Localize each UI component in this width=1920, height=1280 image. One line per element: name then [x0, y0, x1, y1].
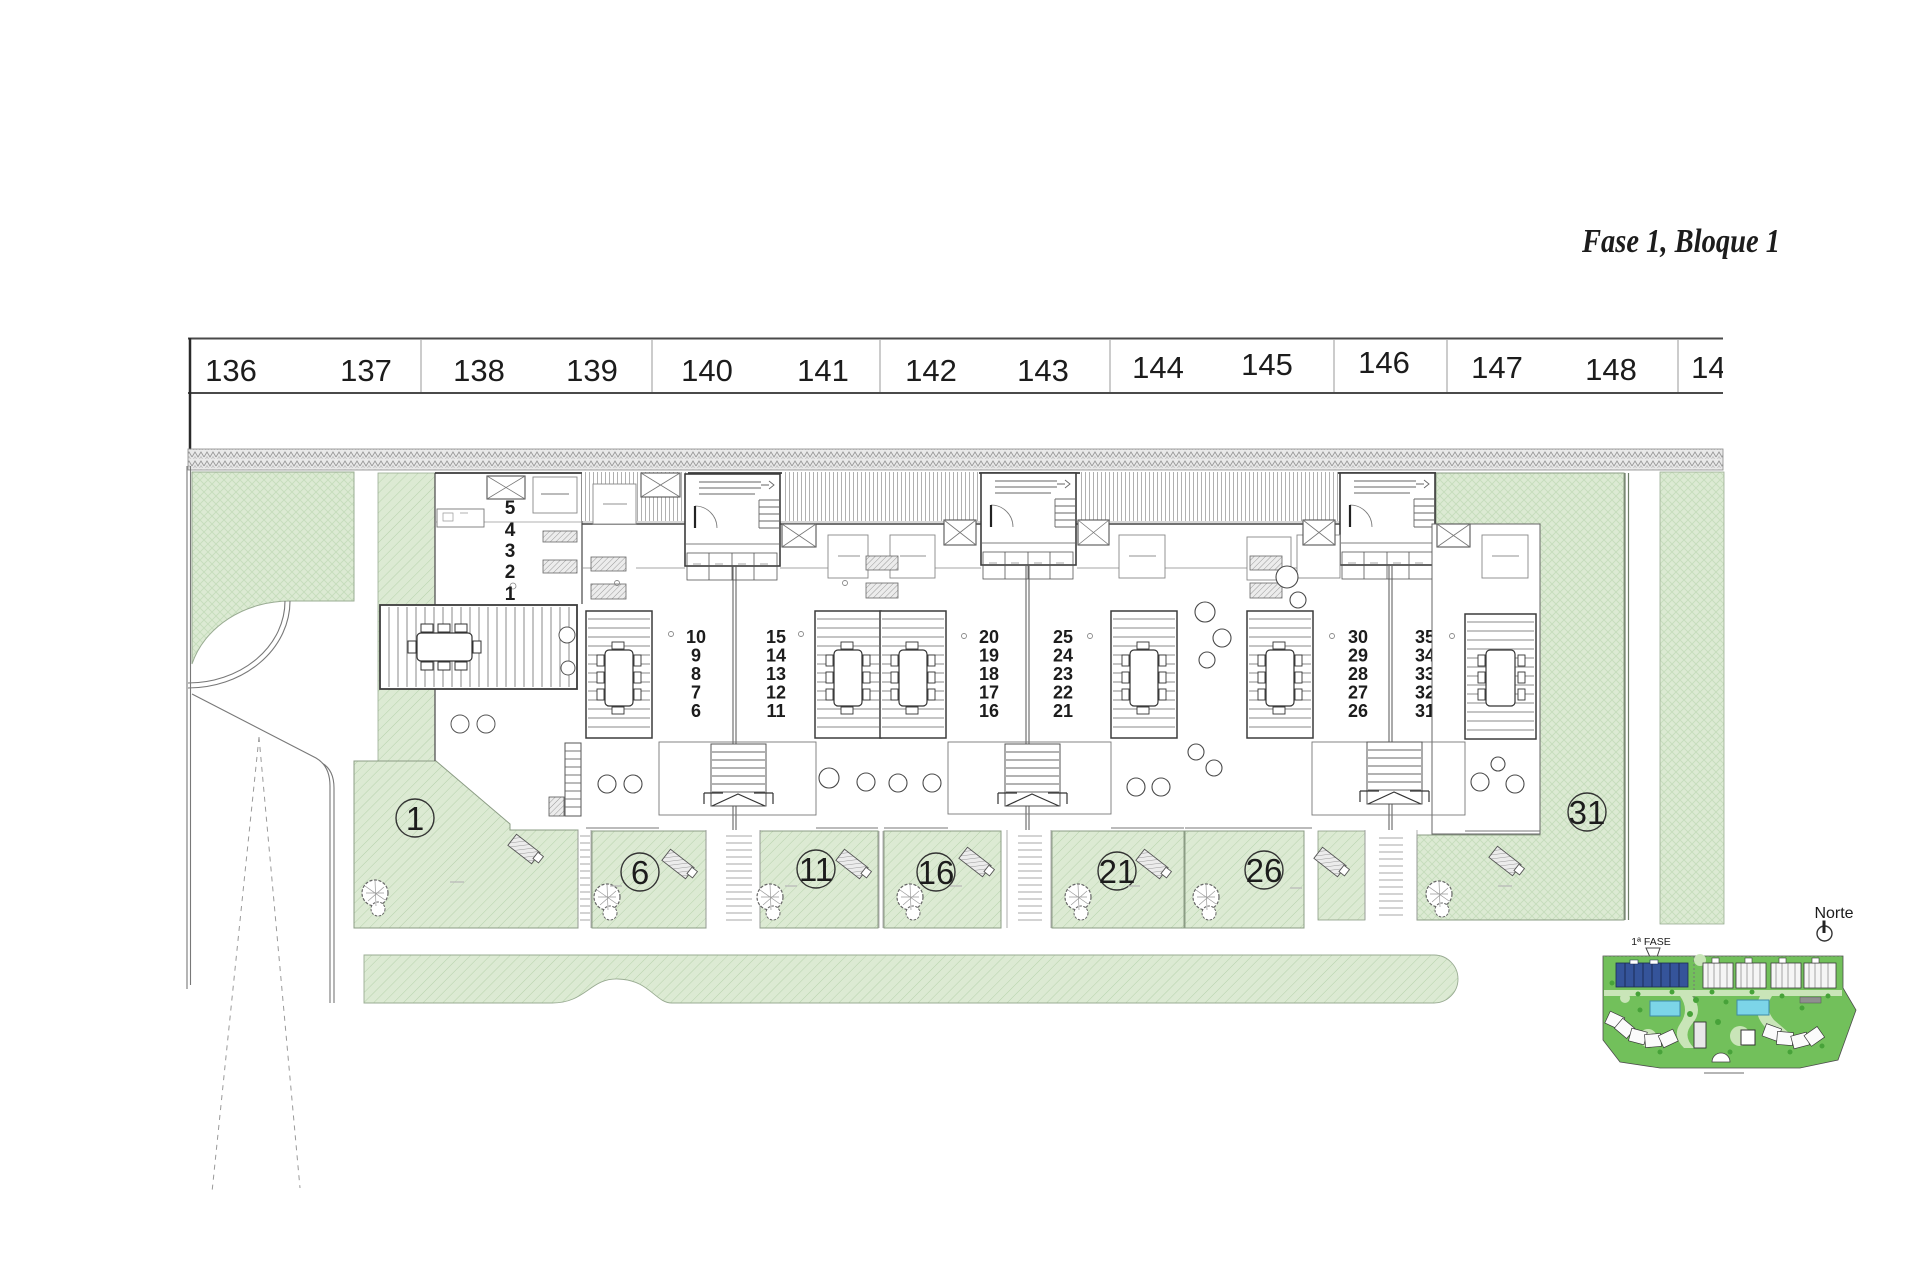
- svg-text:20: 20: [979, 627, 999, 647]
- svg-text:3: 3: [505, 541, 516, 562]
- svg-text:29: 29: [1348, 646, 1368, 666]
- svg-text:1: 1: [406, 800, 424, 837]
- svg-text:27: 27: [1348, 683, 1368, 703]
- svg-text:1ª FASE: 1ª FASE: [1631, 936, 1671, 948]
- svg-text:144: 144: [1132, 350, 1184, 385]
- svg-text:11: 11: [766, 701, 785, 721]
- svg-text:7: 7: [691, 683, 701, 703]
- svg-text:10: 10: [686, 627, 706, 647]
- svg-text:148: 148: [1585, 352, 1637, 387]
- svg-text:25: 25: [1053, 627, 1073, 647]
- svg-text:142: 142: [905, 353, 957, 388]
- svg-text:6: 6: [631, 854, 649, 891]
- svg-text:145: 145: [1241, 347, 1293, 382]
- svg-text:140: 140: [681, 353, 733, 388]
- svg-text:147: 147: [1471, 350, 1523, 385]
- svg-text:21: 21: [1053, 701, 1073, 721]
- svg-text:6: 6: [691, 701, 701, 721]
- svg-text:143: 143: [1017, 353, 1069, 388]
- svg-text:2: 2: [505, 562, 516, 583]
- svg-text:14: 14: [766, 646, 786, 666]
- svg-text:19: 19: [979, 646, 999, 666]
- svg-text:8: 8: [691, 664, 701, 684]
- svg-text:16: 16: [918, 854, 955, 891]
- svg-text:15: 15: [766, 627, 786, 647]
- svg-text:141: 141: [797, 353, 849, 388]
- svg-text:11: 11: [799, 851, 833, 888]
- svg-text:16: 16: [979, 701, 999, 721]
- svg-text:Norte: Norte: [1814, 905, 1853, 922]
- svg-text:9: 9: [691, 646, 701, 666]
- svg-text:21: 21: [1099, 853, 1136, 890]
- svg-text:136: 136: [205, 353, 257, 388]
- svg-text:Fase 1, Bloque 1: Fase 1, Bloque 1: [1581, 223, 1780, 260]
- svg-text:18: 18: [979, 664, 999, 684]
- svg-text:24: 24: [1053, 646, 1073, 666]
- svg-text:23: 23: [1053, 664, 1073, 684]
- svg-text:26: 26: [1246, 852, 1283, 889]
- svg-text:4: 4: [505, 520, 516, 541]
- svg-text:138: 138: [453, 353, 505, 388]
- svg-text:146: 146: [1358, 345, 1410, 380]
- svg-text:22: 22: [1053, 683, 1073, 703]
- svg-text:5: 5: [505, 498, 516, 519]
- svg-text:137: 137: [340, 353, 392, 388]
- svg-text:1: 1: [505, 584, 516, 605]
- svg-text:31: 31: [1569, 794, 1606, 831]
- svg-text:30: 30: [1348, 627, 1368, 647]
- svg-text:12: 12: [766, 683, 786, 703]
- svg-text:139: 139: [566, 353, 618, 388]
- svg-text:17: 17: [979, 683, 999, 703]
- svg-text:13: 13: [766, 664, 786, 684]
- svg-text:26: 26: [1348, 701, 1368, 721]
- svg-text:28: 28: [1348, 664, 1368, 684]
